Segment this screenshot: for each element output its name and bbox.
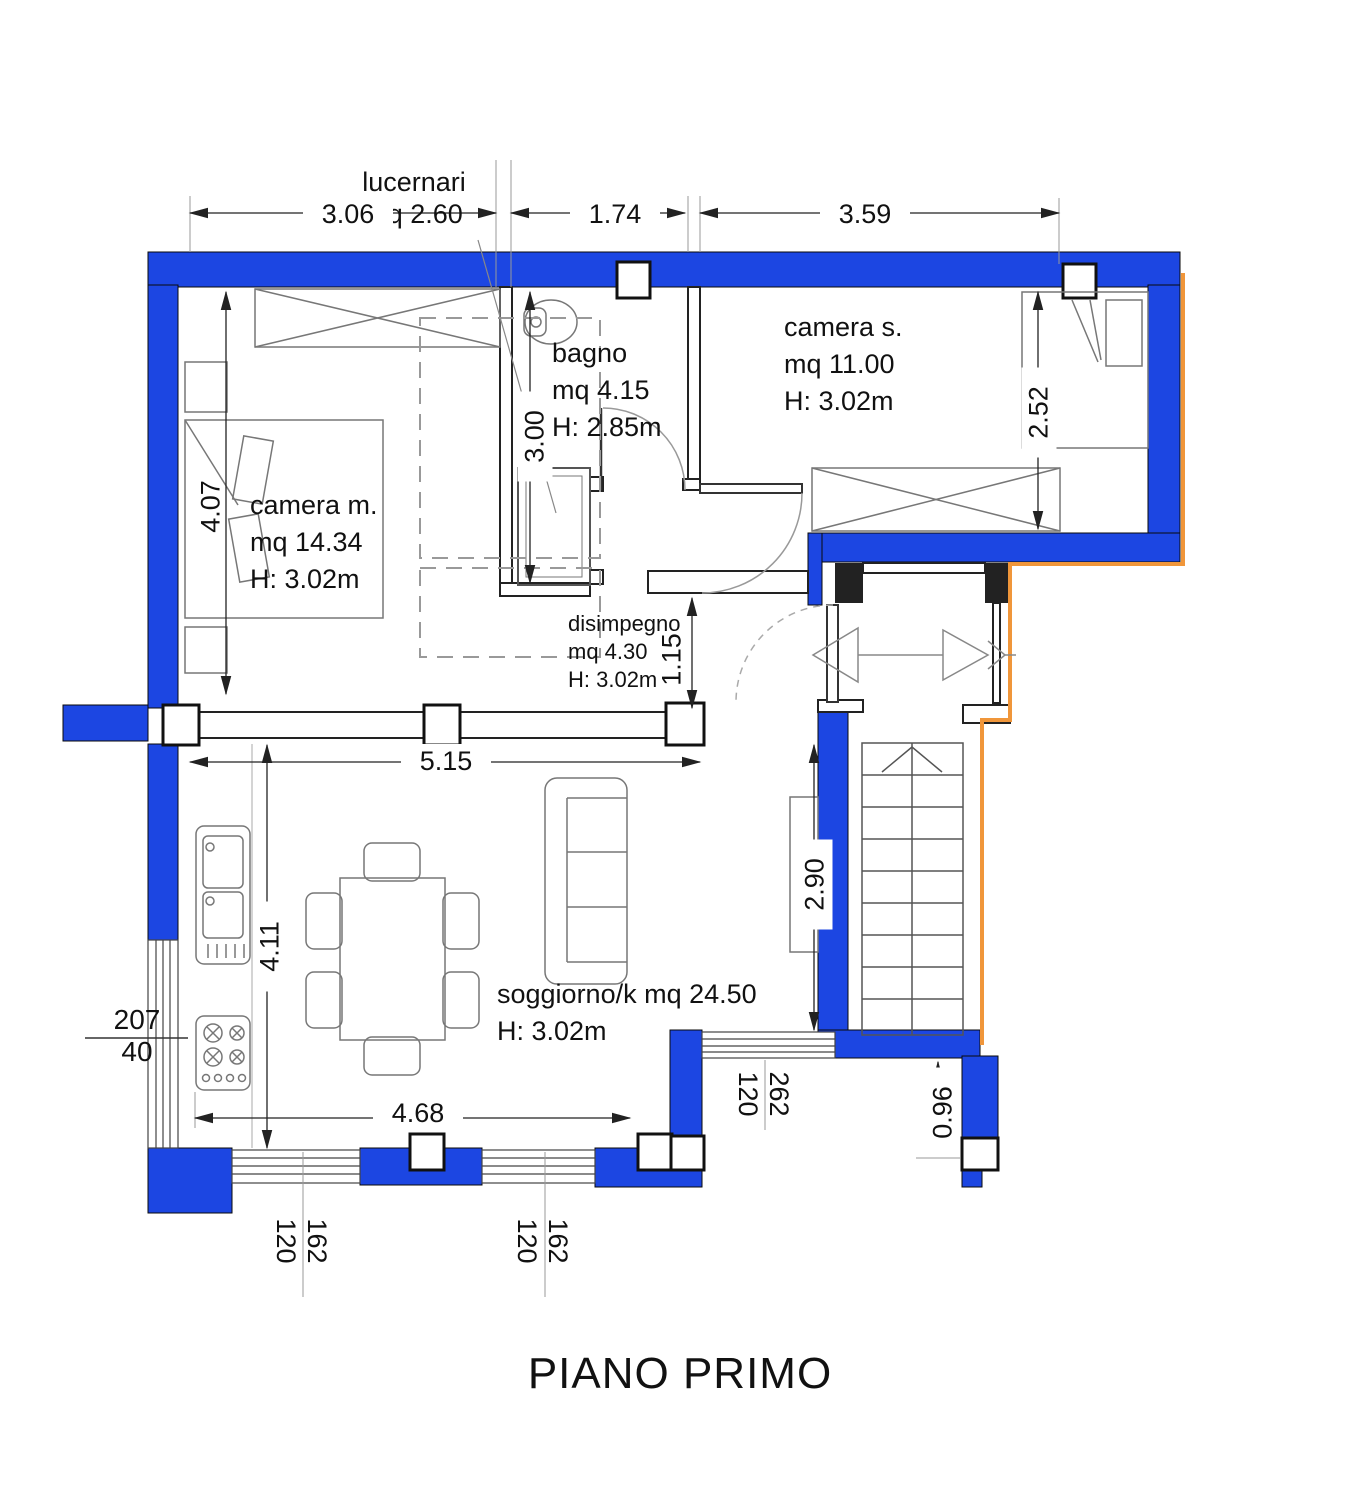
dim-hall-depth: 1.15 — [655, 618, 690, 702]
dim-bagno-depth: 3.00 — [518, 392, 553, 482]
camera-s-name: camera s. — [784, 309, 903, 346]
dim-living-depth: 4.11 — [253, 902, 288, 992]
dim-top-left: 3.06 — [303, 197, 393, 232]
room-label-camera-s: camera s. mq 11.00 H: 3.02m — [784, 309, 903, 420]
window-balcony-sill: 120 — [732, 1051, 763, 1137]
dim-living-width: 5.15 — [401, 744, 491, 779]
page-title: PIANO PRIMO — [430, 1356, 930, 1391]
bagno-area: mq 4.15 — [552, 372, 662, 409]
camera-m-height: H: 3.02m — [250, 561, 378, 598]
camera-m-area: mq 14.34 — [250, 524, 378, 561]
bagno-height: H: 2.85m — [552, 409, 662, 446]
window-label-bottom-2: 162 120 — [511, 1198, 573, 1284]
camera-s-height: H: 3.02m — [784, 383, 903, 420]
window-bottom-2-width: 162 — [542, 1198, 573, 1284]
soggiorno-name: soggiorno/k mq 24.50 — [497, 976, 757, 1013]
dim-living-bottom: 4.68 — [373, 1096, 463, 1131]
dim-top-mid: 1.74 — [570, 197, 660, 232]
room-label-soggiorno: soggiorno/k mq 24.50 H: 3.02m — [497, 976, 757, 1050]
window-left-width: 207 — [85, 1004, 189, 1036]
dim-camera-s-depth: 2.52 — [1022, 368, 1057, 458]
plan-linework — [0, 0, 1357, 1500]
furniture-camera-m — [185, 289, 500, 673]
camera-m-name: camera m. — [250, 487, 378, 524]
window-label-left: 207 40 — [85, 1004, 189, 1068]
camera-s-area: mq 11.00 — [784, 346, 903, 383]
room-label-bagno: bagno mq 4.15 H: 2.85m — [552, 335, 662, 446]
dim-top-right: 3.59 — [820, 197, 910, 232]
floor-plan: lucernari mq 2.60 3.06 1.74 3.59 camera … — [0, 0, 1357, 1500]
window-balcony-width: 262 — [763, 1051, 794, 1137]
kitchen-units — [196, 744, 252, 1148]
window-left-sill: 40 — [85, 1036, 189, 1068]
landing-symbols — [813, 628, 1016, 682]
window-bottom-1-width: 162 — [301, 1198, 332, 1284]
window-label-balcony: 262 120 — [732, 1051, 794, 1137]
dim-stair-side: 2.90 — [798, 840, 833, 930]
skylight-label-line1: lucernari — [346, 166, 482, 198]
window-bottom-2-sill: 120 — [511, 1198, 542, 1284]
bagno-name: bagno — [552, 335, 662, 372]
window-bottom-1-sill: 120 — [270, 1198, 301, 1284]
dim-camera-m-depth: 4.07 — [194, 465, 229, 549]
window-label-bottom-1: 162 120 — [270, 1198, 332, 1284]
soggiorno-height: H: 3.02m — [497, 1013, 757, 1050]
room-label-camera-m: camera m. mq 14.34 H: 3.02m — [250, 487, 378, 598]
dim-balcony-depth: 0.96 — [926, 1068, 961, 1158]
stairs — [862, 743, 963, 1035]
